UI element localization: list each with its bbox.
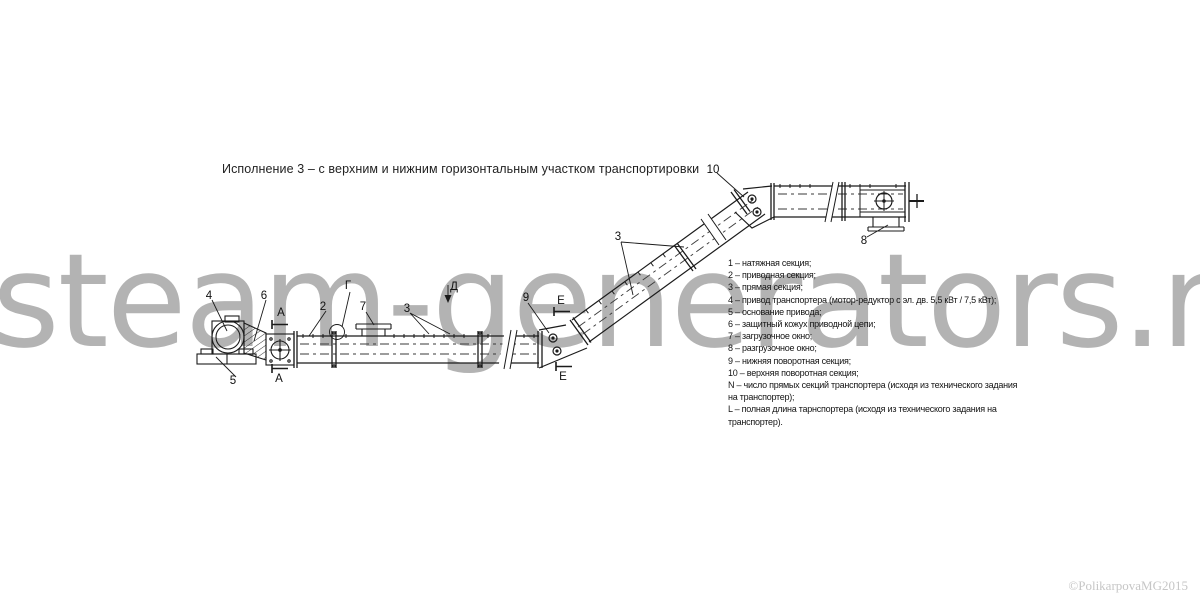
drive-assembly bbox=[197, 316, 266, 364]
upper-turn-section bbox=[731, 183, 774, 228]
legend-item: транспортер). bbox=[728, 416, 1017, 428]
legend-item: 6 – защитный кожух приводной цепи; bbox=[728, 318, 1017, 330]
copyright-text: ©PolikarpovaMG2015 bbox=[1068, 578, 1188, 594]
legend-item: 5 – основание привода; bbox=[728, 306, 1017, 318]
legend-item: на транспортер); bbox=[728, 391, 1017, 403]
upper-conveyor bbox=[774, 182, 924, 231]
legend-item: 3 – прямая секция; bbox=[728, 281, 1017, 293]
legend-item: 7 – загрузочное окно; bbox=[728, 330, 1017, 342]
legend-item: 1 – натяжная секция; bbox=[728, 257, 1017, 269]
legend-item: L – полная длина тарнспортера (исходя из… bbox=[728, 403, 1017, 415]
drawing-title: Исполнение 3 – с верхним и нижним горизо… bbox=[222, 162, 699, 176]
lower-turn-section bbox=[539, 318, 591, 369]
legend-item: 10 – верхняя поворотная секция; bbox=[728, 367, 1017, 379]
legend-item: 9 – нижняя поворотная секция; bbox=[728, 355, 1017, 367]
legend-item: 4 – привод транспортера (мотор-редуктор … bbox=[728, 294, 1017, 306]
legend-item: 2 – приводная секция; bbox=[728, 269, 1017, 281]
legend-item: 8 – разгрузочное окно; bbox=[728, 342, 1017, 354]
legend-item: N – число прямых секций транспортера (ис… bbox=[728, 379, 1017, 391]
drive-section bbox=[266, 331, 297, 368]
drawing-sheet: steam-generators.ru bbox=[0, 0, 1200, 600]
lower-conveyor bbox=[297, 324, 542, 369]
legend-list: 1 – натяжная секция;2 – приводная секция… bbox=[728, 257, 1017, 428]
conveyor-drawing bbox=[0, 0, 1200, 600]
